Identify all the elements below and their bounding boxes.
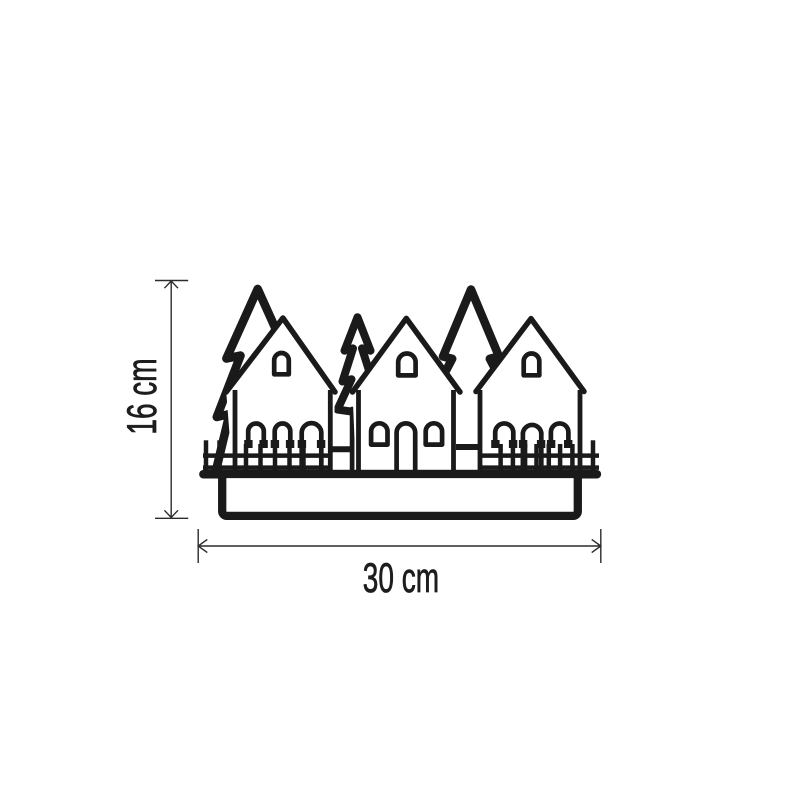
svg-text:30 cm: 30 cm bbox=[363, 556, 439, 602]
svg-text:16 cm: 16 cm bbox=[120, 358, 166, 434]
